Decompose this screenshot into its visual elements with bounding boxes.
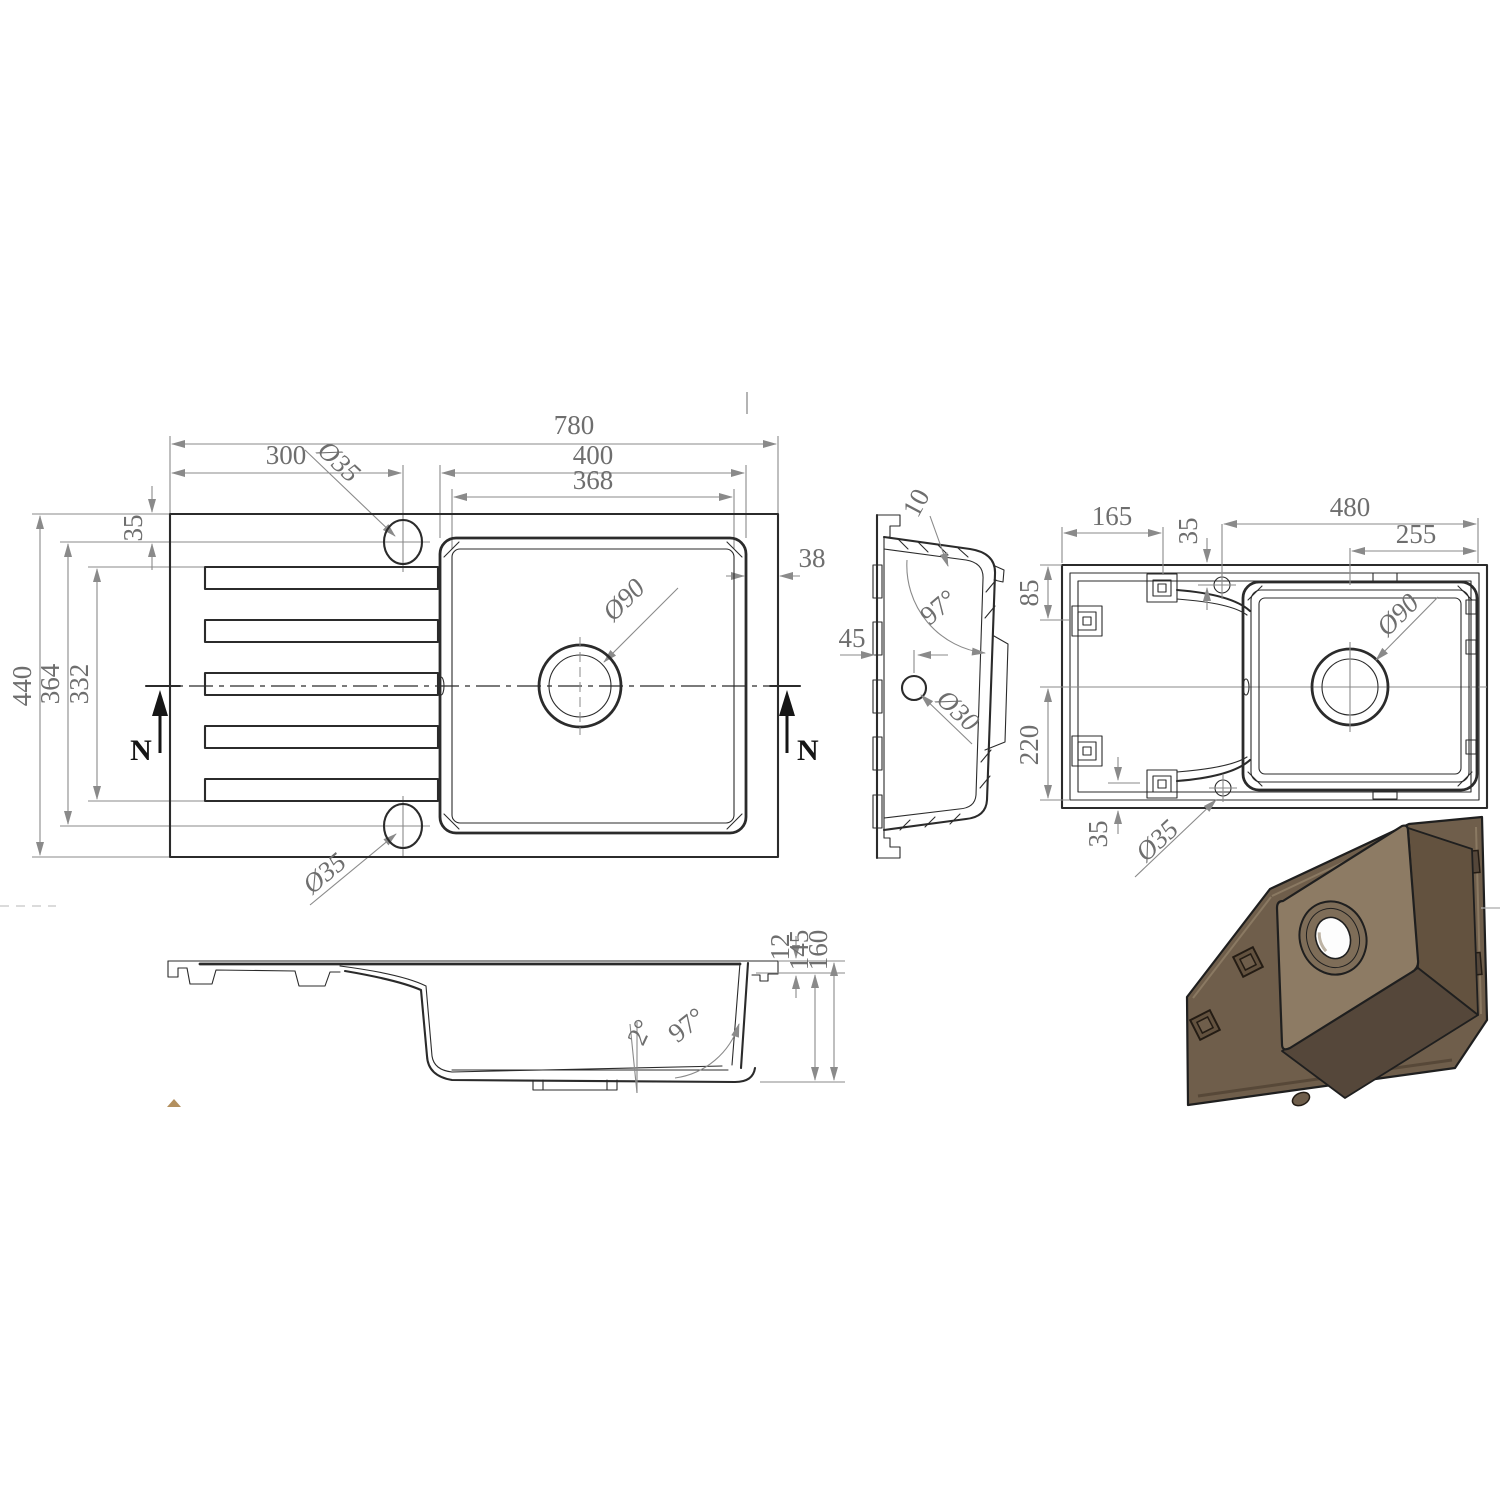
artifacts xyxy=(0,392,747,1107)
iso-view xyxy=(1187,817,1500,1108)
dim-332: 332 xyxy=(64,664,94,705)
dia35-bv-label: Ø35 xyxy=(1129,814,1184,868)
dim-220: 220 xyxy=(1014,725,1044,766)
dim-35-bv-top: 35 xyxy=(1173,518,1203,545)
front-section-view: 12 145 160 2° 97° xyxy=(168,930,845,1093)
dia90-bv-label: Ø90 xyxy=(1370,587,1425,642)
dim-38: 38 xyxy=(799,543,826,573)
dim-364: 364 xyxy=(35,663,65,704)
dim-480: 480 xyxy=(1330,492,1371,522)
dim-255: 255 xyxy=(1396,519,1437,549)
angle-97-side: 97° xyxy=(914,583,962,630)
plan-view: 780 300 400 368 35 440 364 332 38 Ø35 Ø3… xyxy=(7,410,826,905)
mounting-pads xyxy=(1072,574,1177,798)
dim-45: 45 xyxy=(839,623,866,653)
bowl-underside-chamfers xyxy=(1248,586,1472,786)
drainer-ribs xyxy=(205,567,438,801)
dim-165: 165 xyxy=(1092,501,1133,531)
plan-extension-lines xyxy=(32,436,778,857)
section-label-left: N xyxy=(130,734,152,767)
dim-85: 85 xyxy=(1014,580,1044,607)
dim-10: 10 xyxy=(896,484,935,522)
drawing-sheet: 780 300 400 368 35 440 364 332 38 Ø35 Ø3… xyxy=(0,0,1500,1500)
dia90-label: Ø90 xyxy=(596,572,651,627)
dim-300: 300 xyxy=(266,440,307,470)
dim-160: 160 xyxy=(803,930,833,971)
dim-35-bv-bottom: 35 xyxy=(1083,821,1113,848)
dia35-top-label: Ø35 xyxy=(311,434,366,488)
tan-triangle-artifact xyxy=(167,1099,181,1107)
section-marker-right xyxy=(770,686,800,753)
dia35-bottom-label: Ø35 xyxy=(296,847,352,901)
section-hatching xyxy=(898,539,996,830)
bowl-underside-outer xyxy=(1243,582,1477,790)
iso-tap-hole xyxy=(1290,1090,1311,1108)
bottom-view: 165 35 480 255 85 220 35 Ø35 Ø90 xyxy=(1014,492,1487,877)
dim-35-top: 35 xyxy=(118,515,148,542)
side-section-view: 45 10 97° Ø30 xyxy=(839,484,1009,858)
side-section-geometry xyxy=(873,515,1008,858)
dia30-label: Ø30 xyxy=(930,683,986,738)
dim-368: 368 xyxy=(573,465,614,495)
dim-440: 440 xyxy=(7,666,37,707)
dim-780: 780 xyxy=(554,410,595,440)
angle-2: 2° xyxy=(621,1015,658,1050)
drawing-canvas: 780 300 400 368 35 440 364 332 38 Ø35 Ø3… xyxy=(0,0,1500,1500)
reinforcement-ribs xyxy=(1177,590,1250,781)
section-label-right: N xyxy=(797,734,819,767)
angle-97-front: 97° xyxy=(662,1001,710,1048)
